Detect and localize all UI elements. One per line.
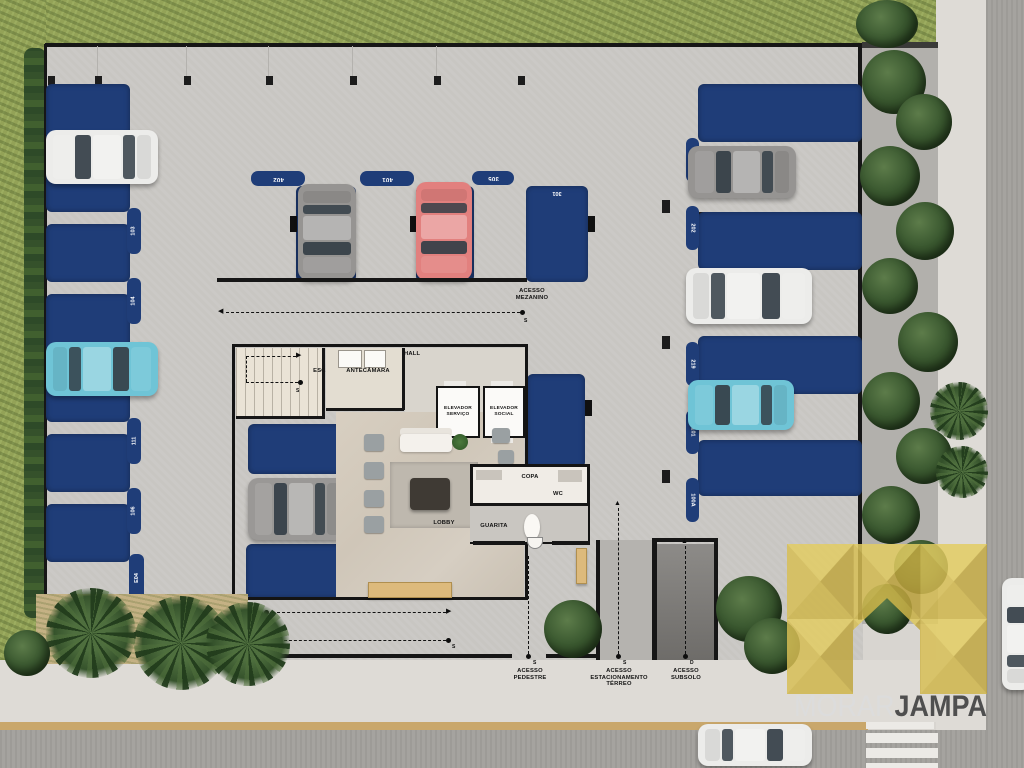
- hall-label: HALL: [404, 351, 430, 358]
- arrow-right-icon: [296, 352, 301, 359]
- parking-spot: [698, 84, 862, 142]
- path-dot: [526, 654, 531, 659]
- stairs-path: [246, 356, 247, 382]
- coffee-table: [410, 478, 450, 510]
- bush: [544, 600, 602, 658]
- palm-tree: [206, 602, 290, 686]
- parking-spot-label: 106: [127, 488, 141, 534]
- arrow-up-icon: [614, 500, 621, 507]
- tree: [896, 94, 952, 150]
- floor-plan-render: 102 103 104 105 111 106 E04 301 402 401 …: [0, 0, 1024, 768]
- stairs-path: [246, 356, 296, 357]
- sofa: [400, 434, 452, 452]
- access-arrow-mezanino: [226, 312, 520, 313]
- access-arrow-estacionamento: [618, 508, 619, 654]
- armchair: [364, 462, 384, 479]
- copa-label: COPA: [512, 474, 548, 481]
- bay-line: [268, 46, 269, 76]
- path-dot: [616, 654, 621, 659]
- start-marker: S: [524, 318, 527, 324]
- armchair: [364, 490, 384, 507]
- gate-wall: [552, 541, 590, 545]
- armchair: [498, 450, 514, 464]
- core-wall: [322, 348, 325, 418]
- parking-spot-label: 202: [686, 206, 699, 250]
- counter: [558, 470, 582, 482]
- bench-entrance: [368, 582, 452, 598]
- core-wall: [326, 408, 404, 411]
- tree: [898, 312, 958, 372]
- tree: [856, 0, 918, 48]
- access-arrow-subsolo: [685, 546, 686, 654]
- tree: [896, 202, 954, 260]
- access-mezanino-label: ACESSO MEZANINO: [500, 288, 564, 301]
- post: [662, 200, 670, 213]
- access-pedestre-line1: ACESSO: [496, 668, 564, 675]
- path-dot: [520, 310, 525, 315]
- antecamara-label: ANTECÂMARA: [340, 368, 396, 375]
- door-panel: [364, 350, 386, 368]
- bay-line: [97, 46, 98, 76]
- guarita-label: GUARITA: [470, 523, 518, 530]
- corridor-wall: [217, 278, 527, 282]
- post: [266, 76, 273, 85]
- grass-top: [0, 0, 936, 46]
- car-white-right: [686, 268, 812, 324]
- bush: [4, 630, 50, 676]
- logo-word-jampa: JAMPA: [895, 690, 988, 723]
- armchair: [364, 434, 384, 451]
- drive-wall: [652, 540, 657, 660]
- logo-word-morar: MORAR: [794, 690, 895, 723]
- palm-tree: [936, 446, 988, 498]
- palm-tree: [46, 588, 136, 678]
- driveway-terreo: [600, 540, 652, 660]
- post: [662, 336, 670, 349]
- crosswalk-stripe: [866, 748, 938, 758]
- post: [350, 76, 357, 85]
- stairs-path: [246, 382, 298, 383]
- tree: [862, 372, 920, 430]
- start-marker: S: [533, 660, 536, 666]
- parking-spot: [46, 224, 130, 282]
- wc-label: WC: [548, 491, 568, 498]
- morar-jampa-logo: MORARJAMPA: [786, 544, 1006, 744]
- tree: [860, 146, 920, 206]
- car-white-left: [46, 130, 158, 184]
- armchair: [364, 516, 384, 533]
- elevator-servico-label: SERVIÇO: [447, 412, 470, 418]
- elevator-social-label: SOCIAL: [494, 412, 513, 418]
- crosswalk-stripe: [866, 763, 938, 768]
- post: [184, 76, 191, 85]
- path-dot: [298, 380, 303, 385]
- lobby-label: LOBBY: [424, 520, 464, 527]
- bay-line: [352, 46, 353, 76]
- car-cyan-left: [46, 342, 158, 396]
- access-subsolo-line1: ACESSO: [652, 668, 720, 675]
- tree: [862, 258, 918, 314]
- parking-spot: [698, 440, 862, 496]
- door-panel: [338, 350, 362, 368]
- car-cyan-right: [688, 380, 794, 430]
- parking-spot: [698, 212, 862, 270]
- post: [434, 76, 441, 85]
- core-wall: [470, 503, 588, 506]
- access-subsolo-label: ACESSO SUBSOLO: [652, 668, 720, 681]
- access-subsolo-line2: SUBSOLO: [652, 675, 720, 682]
- bay-line: [436, 46, 437, 76]
- logo-mark-icon: [786, 544, 988, 694]
- parking-spot: [46, 434, 130, 492]
- car-red-top: [416, 182, 472, 280]
- arrow-up-icon: [681, 538, 688, 545]
- access-mezanino-line2: MEZANINO: [500, 295, 564, 302]
- logo-wordmark: MORARJAMPA: [794, 690, 987, 724]
- lane-arrow: [272, 612, 446, 613]
- down-marker: D: [690, 660, 694, 666]
- bay-line: [186, 46, 187, 76]
- post: [518, 76, 525, 85]
- lane-arrow: [274, 640, 446, 641]
- tree: [862, 486, 920, 544]
- start-marker: S: [452, 644, 455, 650]
- core-wall: [236, 416, 325, 419]
- access-pedestre-label: ACESSO PEDESTRE: [496, 668, 564, 681]
- parking-spot-label: 100A: [686, 478, 699, 522]
- stairs-escada: [236, 348, 322, 418]
- access-estacionamento-label: ACESSO ESTACIONAMENTO TÉRREO: [576, 668, 662, 688]
- arrow-left-icon: [218, 308, 223, 315]
- path-dot: [683, 654, 688, 659]
- parking-spot-label: 103: [127, 208, 141, 254]
- wheel-stop: [585, 400, 592, 416]
- armchair: [492, 428, 510, 443]
- start-marker: S: [623, 660, 626, 666]
- wheel-stop: [290, 216, 297, 232]
- arrow-right-icon: [446, 608, 451, 615]
- parking-spot-label: 104: [127, 278, 141, 324]
- access-pedestre-line2: PEDESTRE: [496, 675, 564, 682]
- post: [662, 470, 670, 483]
- parking-spot-label: 305: [472, 171, 514, 185]
- counter: [476, 470, 502, 480]
- parking-spot-label: 401: [360, 171, 414, 186]
- parking-spot-label: 402: [251, 171, 305, 186]
- bench-side: [576, 548, 587, 584]
- wheel-stop: [588, 216, 595, 232]
- access-estacionamento-line3: TÉRREO: [576, 681, 662, 688]
- parking-spot: [46, 504, 130, 562]
- parking-spot-label: 301: [526, 190, 588, 196]
- access-arrow-pedestre: [528, 556, 529, 654]
- path-dot: [446, 638, 451, 643]
- car-gray-right: [688, 146, 796, 198]
- wall-top: [45, 43, 863, 47]
- car-gray-top: [298, 184, 356, 280]
- parking-spot: 301: [526, 186, 588, 282]
- plant: [452, 434, 468, 450]
- access-mezanino-line1: ACESSO: [500, 288, 564, 295]
- hedge-left: [24, 48, 46, 618]
- access-estacionamento-line1: ACESSO: [576, 668, 662, 675]
- logo-underline: [866, 722, 934, 729]
- gate-wall: [473, 541, 525, 545]
- start-marker: S: [296, 388, 299, 394]
- parking-spot: [527, 374, 585, 468]
- parking-spot-label: 111: [127, 418, 141, 464]
